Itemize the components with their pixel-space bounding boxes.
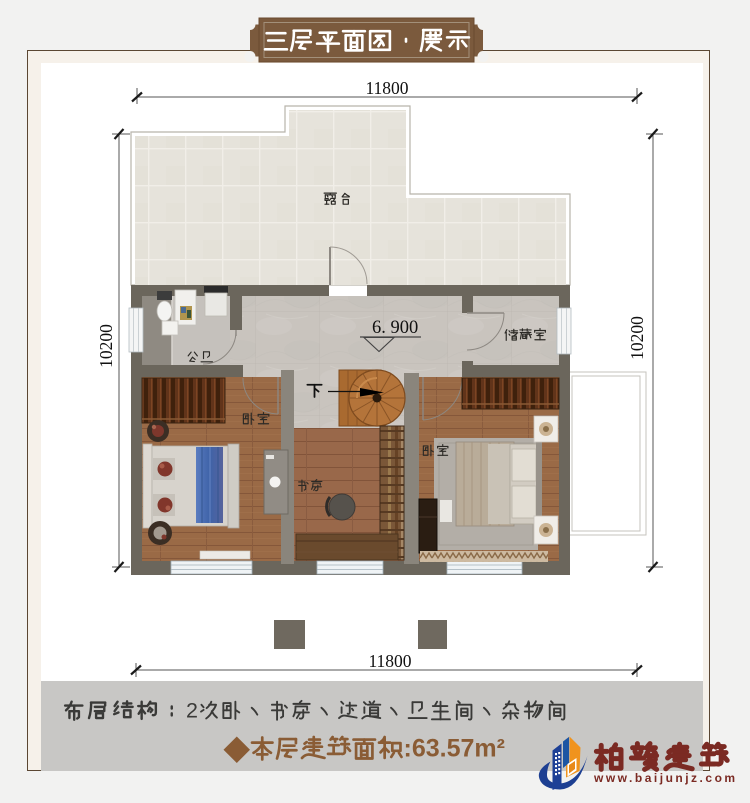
svg-text::63.57m²: :63.57m² <box>404 734 505 762</box>
svg-text:11800: 11800 <box>365 78 408 98</box>
svg-text:www.baijunjz.com: www.baijunjz.com <box>593 771 738 785</box>
svg-text:10200: 10200 <box>96 324 116 368</box>
svg-text:10200: 10200 <box>627 316 647 360</box>
svg-text:6. 900: 6. 900 <box>372 318 418 338</box>
svg-text:2: 2 <box>186 699 198 723</box>
svg-text:11800: 11800 <box>368 651 411 671</box>
